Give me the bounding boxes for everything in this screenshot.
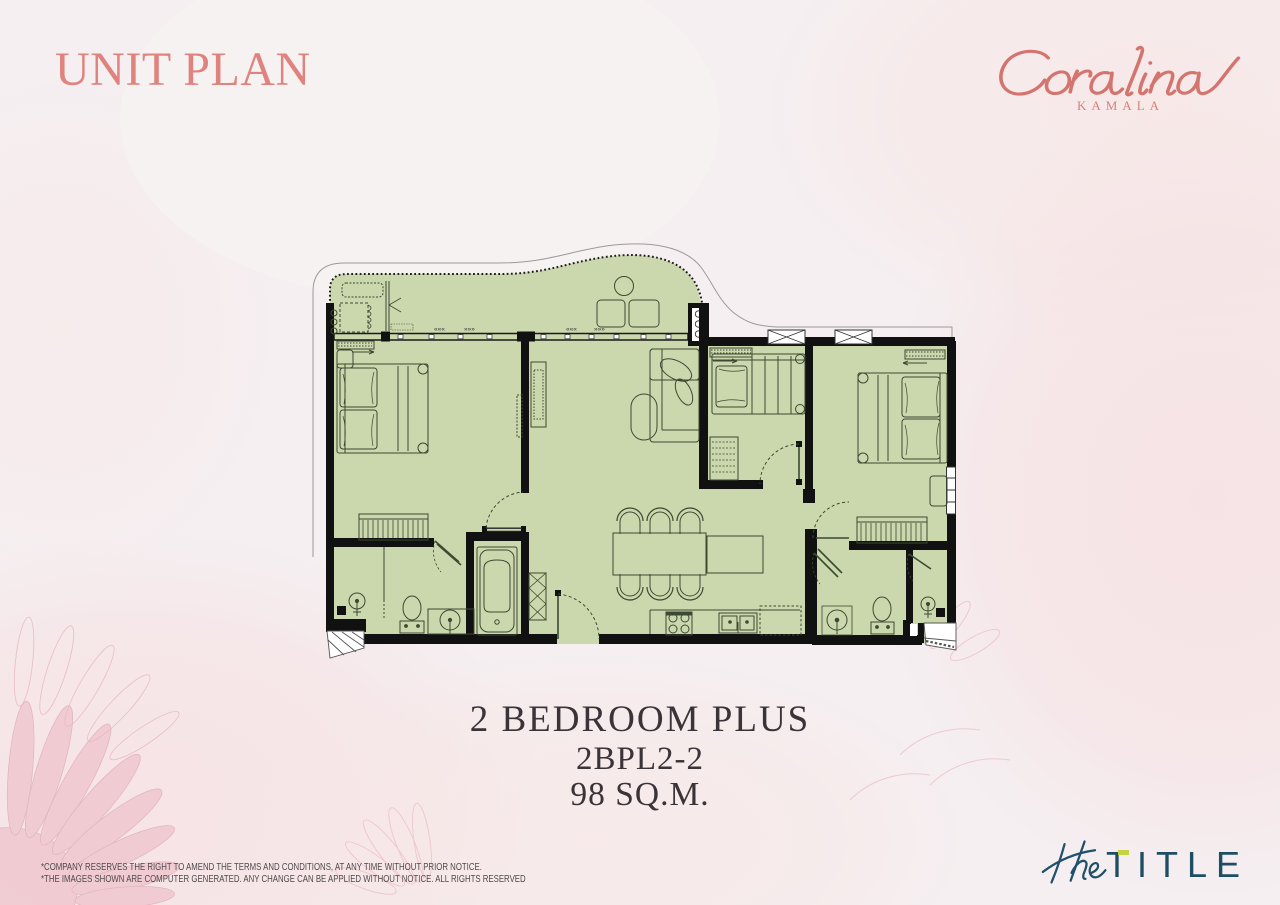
svg-text:«««: «««	[566, 326, 577, 333]
svg-text:»»»: »»»	[464, 326, 475, 333]
svg-text:«««: «««	[434, 326, 445, 333]
